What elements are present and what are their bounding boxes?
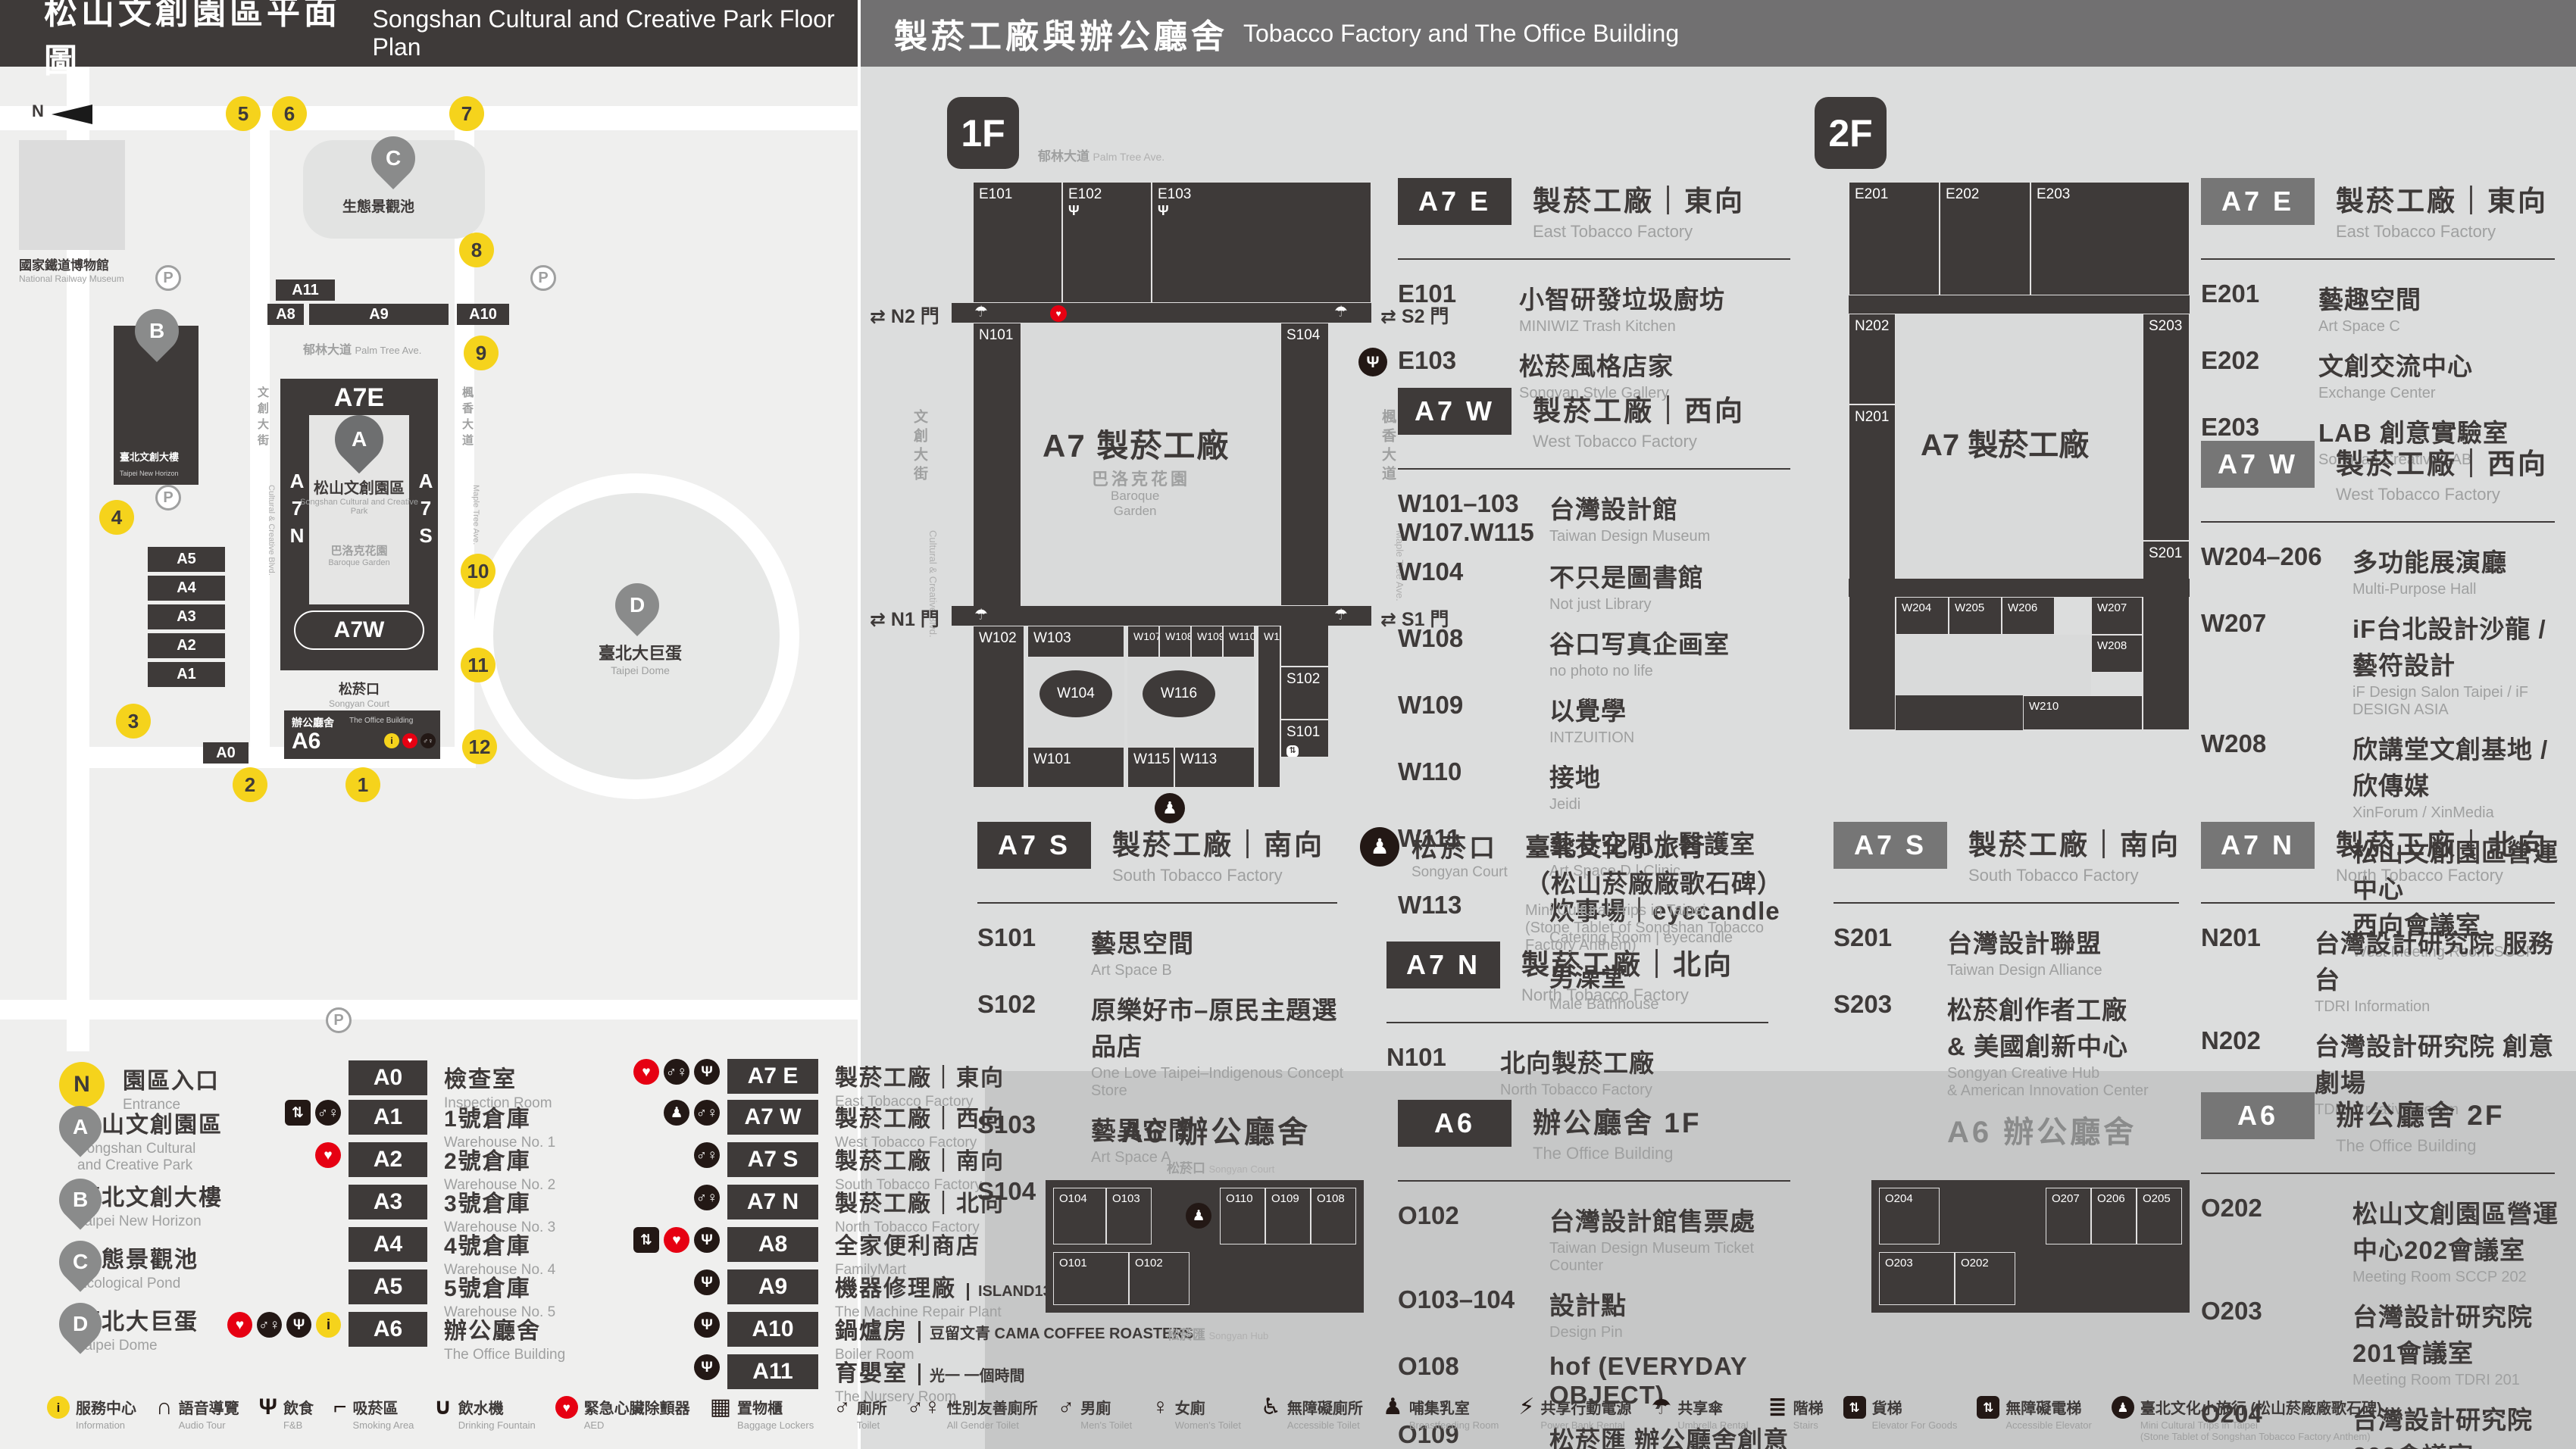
legend-place-zh: 園區入口: [123, 1062, 220, 1095]
plan-room: O103: [1106, 1188, 1152, 1244]
room-name-zh: 松山文創園區營運中心202會議室: [2352, 1194, 2574, 1266]
section-rooms: N201台灣設計研究院 服務台TDRI InformationN202台灣設計研…: [2201, 923, 2574, 1119]
room-code-text: E103: [1398, 346, 1519, 375]
section-rule: [2201, 521, 2555, 523]
room-code-text: W108: [1398, 624, 1549, 653]
entrance-11: 11: [461, 648, 496, 682]
plan-corridor: [952, 606, 1371, 626]
facility-en: Smoking Area: [352, 1419, 414, 1431]
facility-item: ∩ 語音導覽 Audio Tour: [156, 1396, 239, 1431]
gate-n1: ⇄ N1 門: [870, 604, 939, 632]
room-code: N201: [2201, 923, 2315, 1016]
section-title-zh: 製菸工廠｜東向: [2336, 178, 2548, 219]
room-code: S101: [977, 923, 1091, 979]
trips-icon: ♟: [2112, 1396, 2134, 1419]
room-row: W208欣講堂文創基地 / 欣傳媒XinForum / XinMedia: [2201, 729, 2574, 822]
legend-building-code: A4: [349, 1227, 427, 1262]
section-header: A7 W製菸工廠｜西向West Tobacco Factory: [1398, 388, 1811, 451]
facility-en: Information: [76, 1419, 136, 1431]
legend-row-icons: ♂♀: [606, 1185, 720, 1210]
room-code-text: W208: [2201, 729, 2352, 758]
plan-room: E102Ψ: [1062, 182, 1152, 303]
entrance-4: 4: [99, 500, 134, 535]
section-header: A7 S製菸工廠｜南向South Tobacco Factory: [977, 822, 1356, 885]
facility-zh: 置物櫃: [737, 1396, 814, 1418]
room-row: W109以覺學INTZUITION: [1398, 691, 1811, 747]
room-name-zh: 台灣設計館售票處: [1549, 1201, 1811, 1238]
room-name-zh: 藝趣空間: [2318, 279, 2421, 316]
room-row: E202文創交流中心Exchange Center: [2201, 346, 2574, 402]
legend-row-icons: Ψ: [606, 1312, 720, 1338]
room-name-en: Songyan Creative Hub& American Innovatio…: [1947, 1065, 2149, 1100]
plan-garden-zh: 巴洛克花園: [1092, 466, 1190, 490]
facility-item: ⚡ 共享行動電源 Power Bank Rental: [1518, 1396, 1631, 1431]
north-label: N: [32, 101, 44, 121]
entrance-5: 5: [226, 96, 261, 131]
legend-building-code: A11: [727, 1354, 818, 1389]
legend-row-icons: Ψ: [606, 1354, 720, 1380]
room-name-zh: 松菸風格店家: [1519, 346, 1674, 383]
room-code: N101: [1386, 1043, 1500, 1099]
room-code-text: E203: [2201, 413, 2318, 442]
songyan-en: Mini Cultural Trips in Taipei(Stone Tabl…: [1525, 902, 1796, 954]
facility-en: F&B: [283, 1419, 314, 1431]
right-header: 製菸工廠與辦公廳舍 Tobacco Factory and The Office…: [861, 0, 2576, 67]
entrance-1: 1: [345, 767, 380, 802]
fnb-icon: Ψ: [1158, 204, 1169, 217]
fnb-c-icon: Ψ: [694, 1312, 720, 1338]
room-names: iF台北設計沙龍 / 藝符設計iF Design Salon Taipei / …: [2352, 609, 2574, 719]
section-title-en: West Tobacco Factory: [1533, 432, 1745, 451]
a6-1f-court-label: 松菸口 Songyan Court: [1167, 1157, 1274, 1176]
room-names: 不只是圖書館Not just Library: [1549, 557, 1704, 614]
facility-zh: 性別友善廁所: [947, 1396, 1038, 1418]
section-rule: [2201, 258, 2555, 260]
map-a11: A11: [276, 279, 335, 301]
plan-room: S101 ⇅: [1280, 720, 1329, 757]
section-rooms: S201台灣設計聯盟Taiwan Design AllianceS203松菸創作…: [1834, 923, 2197, 1100]
f1-street-left-zh: 文創大街: [909, 409, 930, 485]
a6-1f-hub-label: 松菸匯 Songyan Hub: [1167, 1324, 1268, 1343]
parking-icon: P: [155, 485, 181, 511]
facility-en: Umbrella Rental: [1677, 1419, 1748, 1431]
entrance-7: 7: [449, 96, 484, 131]
room-code: O202: [2201, 1194, 2352, 1286]
map-maple-label-zh: 楓香大道: [459, 386, 475, 450]
legend-building-zh: 檢查室: [444, 1060, 552, 1094]
room-name-zh: 以覺學: [1549, 691, 1634, 727]
plan-room: W108: [1159, 626, 1191, 657]
legend-place-en: Songshan Culturaland Creative Park: [77, 1141, 223, 1174]
toilet-icon: ♂♀: [420, 733, 436, 748]
facility-zh: 無障礙電梯: [2005, 1396, 2091, 1418]
room-row: W108谷口写真企画室no photo no life: [1398, 624, 1811, 680]
legend-place-en: Taipei New Horizon: [77, 1213, 223, 1230]
room-name-en: no photo no life: [1549, 663, 1730, 680]
legend-building-zh: 全家便利商店: [835, 1227, 980, 1260]
left-title-en: Songshan Cultural and Creative Park Floo…: [373, 5, 858, 61]
room-code: O103–104: [1398, 1285, 1549, 1341]
room-row: O102台灣設計館售票處Taiwan Design Museum Ticket …: [1398, 1201, 1811, 1275]
plan-room: S104: [1280, 323, 1329, 606]
legend-building-code: A1: [349, 1100, 427, 1135]
room-name-zh: 松菸創作者工廠& 美國創新中心: [1947, 990, 2149, 1063]
section-badge: A7 S: [977, 822, 1091, 869]
plan-room: O203: [1879, 1252, 1955, 1305]
room-code: W101–103W107.W115: [1398, 489, 1549, 547]
parking-icon: P: [155, 265, 181, 291]
room-row: S201台灣設計聯盟Taiwan Design Alliance: [1834, 923, 2197, 979]
room-code-text: W207: [2201, 609, 2352, 638]
songyan-block: ♟ 松菸口 Songyan Court 臺北文化小旅行（松山菸廠廠歌石碑） Mi…: [1360, 827, 1796, 954]
plan-room: O207: [2046, 1188, 2091, 1244]
plan-room: O101: [1053, 1252, 1129, 1305]
facility-en: Accessible Toilet: [1287, 1419, 1363, 1431]
room-name-zh: 谷口写真企画室: [1549, 624, 1730, 660]
room-code-text: O102: [1398, 1201, 1549, 1230]
map-palm-label: 郁林大道 Palm Tree Ave.: [303, 339, 421, 358]
legend-building-code: A10: [727, 1312, 818, 1347]
section-title-en: The Office Building: [2336, 1136, 2504, 1156]
legend-building-brand: 豆留文青 CAMA COFFEE ROASTERS: [918, 1321, 1193, 1343]
entrance-12: 12: [462, 729, 497, 764]
room-code-text: S101: [977, 923, 1091, 952]
section-badge: A7 E: [1398, 178, 1512, 225]
facility-item: Ψ 飲食 F&B: [259, 1396, 314, 1431]
room-name-zh: 文創交流中心: [2318, 346, 2473, 383]
legend-row-icons: ⇅♥Ψ: [606, 1227, 720, 1253]
section-rule: [1398, 468, 1790, 470]
plan-room: W110: [1223, 626, 1255, 657]
entrance-10: 10: [461, 554, 496, 589]
left-title-zh: 松山文創園區平面圖: [44, 0, 358, 82]
facility-zh: 無障礙廁所: [1287, 1396, 1363, 1418]
plan-room: O104: [1053, 1188, 1106, 1244]
room-name-en: TDRI Information: [2315, 998, 2574, 1016]
plan-room: W210: [2023, 695, 2143, 730]
section-title-en: The Office Building: [1533, 1144, 1701, 1163]
accessible-icon: ♿: [1261, 1396, 1281, 1419]
facility-item: ⇅ 貨梯 Elevator For Goods: [1843, 1396, 1958, 1431]
room-code: W109: [1398, 691, 1549, 747]
legend-place-row: B 臺北文創大樓 Taipei New Horizon: [59, 1179, 223, 1230]
room-row: N201台灣設計研究院 服務台TDRI Information: [2201, 923, 2574, 1016]
section-title-en: East Tobacco Factory: [1533, 222, 1745, 242]
plan-room: W115: [1127, 747, 1174, 788]
parking-icon: P: [326, 1007, 352, 1033]
legend-row-icons: Ψ: [606, 1269, 720, 1295]
room-code-text: E201: [2201, 279, 2318, 308]
info-icon: i: [384, 733, 399, 748]
legend-row-icons: ♂♀: [606, 1142, 720, 1168]
legend-building-code: A3: [349, 1185, 427, 1219]
section-rule: [1398, 1180, 1790, 1182]
road-top: [0, 106, 858, 130]
section-a7s-2f: A7 S製菸工廠｜南向South Tobacco FactoryS201台灣設計…: [1834, 822, 2197, 1110]
room-row: S102原樂好市–原民主題選品店One Love Taipei–Indigeno…: [977, 990, 1356, 1100]
room-code-text: S201: [1834, 923, 1947, 952]
room-code-text: W109: [1398, 691, 1549, 720]
aed-icon: ♥: [633, 1059, 659, 1085]
room-name-en: Meeting Room SCCP 202: [2352, 1269, 2574, 1286]
section-badge: A6: [2201, 1092, 2315, 1139]
section-header: A7 E製菸工廠｜東向East Tobacco Factory: [1398, 178, 1811, 242]
room-name-en: Exchange Center: [2318, 385, 2473, 402]
arrows-icon: ⇄: [870, 611, 886, 629]
fnb-c-icon: Ψ: [694, 1269, 720, 1295]
section-title-zh: 製菸工廠｜南向: [1112, 822, 1324, 863]
room-name-zh: 台灣設計聯盟: [1947, 923, 2102, 960]
room-name-en: Not just Library: [1549, 596, 1704, 614]
room-code: W204–206: [2201, 542, 2352, 598]
section-a7n-1f: A7 N製菸工廠｜北向North Tobacco FactoryN101北向製菸…: [1386, 942, 1788, 1110]
facility-zh: 男廁: [1080, 1396, 1132, 1418]
powerbank-icon: ⚡: [1518, 1396, 1534, 1419]
room-names: 藝思空間Art Space B: [1091, 923, 1194, 979]
facility-item: ▦ 置物櫃 Baggage Lockers: [710, 1396, 814, 1431]
room-row: E101小智研發垃圾廚坊MINIWIZ Trash Kitchen: [1398, 279, 1811, 336]
section-title-zh: 製菸工廠｜東向: [1533, 178, 1745, 219]
section-rule: [2201, 902, 2555, 904]
room-name-zh: 台灣設計研究院201會議室: [2352, 1297, 2574, 1369]
facility-item: ♂ 廁所 Toilet: [833, 1396, 887, 1431]
facility-item: ⌐ 吸菸區 Smoking Area: [333, 1396, 414, 1431]
smoking-icon: ⌐: [333, 1396, 347, 1419]
umbrella-icon: ☂: [1651, 1396, 1671, 1419]
section-titles: 辦公廳舍 1FThe Office Building: [1533, 1100, 1701, 1163]
plan-room: E103Ψ: [1152, 182, 1371, 303]
section-header: A7 S製菸工廠｜南向South Tobacco Factory: [1834, 822, 2197, 885]
room-name-en: Taiwan Design Museum: [1549, 528, 1710, 545]
arrows-icon: ⇄: [1380, 611, 1396, 629]
aed-icon: ♥: [227, 1312, 252, 1338]
plan-room: W109: [1191, 626, 1223, 657]
facility-zh: 貨梯: [1872, 1396, 1958, 1418]
room-name-en: iF Design Salon Taipei / iF DESIGN ASIA: [2352, 684, 2574, 719]
map-a5: A5: [148, 547, 225, 572]
plan-corridor: [1849, 295, 2190, 314]
plan-courtyard: [1896, 635, 2091, 695]
room-code-text: O103–104: [1398, 1285, 1549, 1314]
section-title-en: South Tobacco Factory: [1112, 866, 1324, 885]
section-title-en: West Tobacco Factory: [2336, 485, 2548, 504]
room-code-text: S103: [977, 1110, 1091, 1139]
section-titles: 製菸工廠｜北向North Tobacco Factory: [2336, 822, 2548, 885]
facility-en: Women's Toilet: [1175, 1419, 1241, 1431]
facility-item: ☂ 共享傘 Umbrella Rental: [1651, 1396, 1748, 1431]
plan-center-label: A7 製菸工廠: [1043, 420, 1230, 467]
toilet-c-icon: ♂♀: [664, 1059, 689, 1085]
men-icon: ♂: [1058, 1396, 1075, 1419]
women-icon: ♀: [1152, 1396, 1169, 1419]
room-names: 藝趣空間Art Space C: [2318, 279, 2421, 336]
section-title-en: South Tobacco Factory: [1968, 866, 2181, 885]
room-code: S103: [977, 1110, 1091, 1166]
room-code: W104: [1398, 557, 1549, 614]
room-name-en: Taiwan Design Museum Ticket Counter: [1549, 1240, 1811, 1275]
facility-zh: 臺北文化小旅行 (松山菸廠廠歌石碑): [2140, 1396, 2382, 1418]
section-title-zh: 辦公廳舍 2F: [2336, 1092, 2504, 1133]
section-title-zh: 製菸工廠｜西向: [2336, 441, 2548, 482]
facility-zh: 共享傘: [1677, 1396, 1748, 1418]
right-title-en: Tobacco Factory and The Office Building: [1243, 20, 1679, 48]
plan-room: W102: [973, 626, 1024, 788]
section-title-zh: 製菸工廠｜北向: [2336, 822, 2548, 863]
road-bottom: [0, 1000, 858, 1020]
room-code-text: E101: [1398, 279, 1519, 308]
trips-icon: ♟: [664, 1100, 689, 1126]
plan-band: [1896, 695, 2023, 730]
facility-zh: 飲水機: [458, 1396, 536, 1418]
plan-room: E201: [1849, 182, 1940, 295]
toilet-c-icon: ♂♀: [315, 1100, 341, 1126]
section-badge: A7 S: [1834, 822, 1947, 869]
entrance-2: 2: [233, 767, 267, 802]
section-title-zh: 製菸工廠｜西向: [1533, 388, 1745, 429]
map-a2: A2: [148, 633, 225, 658]
room-names: 台灣設計館售票處Taiwan Design Museum Ticket Coun…: [1549, 1201, 1811, 1275]
room-row: O202松山文創園區營運中心202會議室Meeting Room SCCP 20…: [2201, 1194, 2574, 1286]
audio-icon: ∩: [156, 1396, 173, 1419]
arrows-icon: ⇄: [870, 308, 886, 326]
room-names: 以覺學INTZUITION: [1549, 691, 1634, 747]
section-a7e-2f: A7 E製菸工廠｜東向East Tobacco FactoryE201藝趣空間A…: [2201, 178, 2574, 479]
room-code: O102: [1398, 1201, 1549, 1275]
facility-zh: 服務中心: [76, 1396, 136, 1418]
legend-building-code: A9: [727, 1269, 818, 1304]
gate-n2: ⇄ N2 門: [870, 301, 939, 329]
room-name-en: XinForum / XinMedia: [2352, 804, 2574, 822]
room-name-en: MINIWIZ Trash Kitchen: [1519, 318, 1725, 336]
map-court-label: 松菸口 Songyan Court: [299, 679, 420, 709]
plan-room: E203: [2030, 182, 2190, 295]
plan-room: N202: [1849, 314, 1896, 404]
section-header: A7 N製菸工廠｜北向North Tobacco Factory: [2201, 822, 2574, 885]
map-baroque-label: 巴洛克花園 Baroque Garden: [299, 542, 420, 567]
legend-row-icons: ♥♂♀Ψi: [227, 1312, 341, 1338]
room-names: 台灣設計聯盟Taiwan Design Alliance: [1947, 923, 2102, 979]
facility-en: Men's Toilet: [1080, 1419, 1132, 1431]
legend-building-zh: 辦公廳舍: [444, 1312, 565, 1345]
room-names: 北向製菸工廠North Tobacco Factory: [1500, 1043, 1655, 1099]
room-code: E101: [1398, 279, 1519, 336]
map-a9: A9: [309, 304, 449, 325]
map-a6-block: 辦公廳舍 The Office Building A6 i ♥ ♂♀: [284, 710, 440, 759]
room-code-text: W104: [1398, 557, 1549, 586]
aed-icon: ♥: [1050, 305, 1067, 322]
facility-en: AED: [584, 1419, 690, 1431]
facility-item: ♟ 哺集乳室 Breastfeeding Room: [1383, 1396, 1499, 1431]
section-badge: A7 N: [2201, 822, 2315, 869]
room-names: 台灣設計研究院201會議室Meeting Room TDRI 201: [2352, 1297, 2574, 1389]
section-a7e-1f: A7 E製菸工廠｜東向East Tobacco FactoryE101小智研發垃…: [1398, 178, 1811, 413]
section-badge: A7 W: [1398, 388, 1512, 435]
plan-room: O204: [1879, 1188, 1940, 1244]
section-titles: 製菸工廠｜西向West Tobacco Factory: [2336, 441, 2548, 504]
room-name-zh: 小智研發垃圾廚坊: [1519, 279, 1725, 316]
map-a0: A0: [203, 742, 249, 764]
room-row: S203松菸創作者工廠& 美國創新中心Songyan Creative Hub&…: [1834, 990, 2197, 1100]
section-rule: [977, 902, 1337, 904]
room-code: S201: [1834, 923, 1947, 979]
section-header: A6辦公廳舍 2FThe Office Building: [2201, 1092, 2574, 1156]
songyan-court-icon: ♟: [1360, 827, 1399, 867]
room-row: E201藝趣空間Art Space C: [2201, 279, 2574, 336]
legend-building-en: The Office Building: [444, 1347, 565, 1363]
room-names: 谷口写真企画室no photo no life: [1549, 624, 1730, 680]
room-row: W110接地Jeidi: [1398, 757, 1811, 814]
room-code-text: O202: [2201, 1194, 2352, 1223]
room-names: 台灣設計館Taiwan Design Museum: [1549, 489, 1710, 547]
room-names: 原樂好市–原民主題選品店One Love Taipei–Indigenous C…: [1091, 990, 1356, 1100]
section-rooms: E101小智研發垃圾廚坊MINIWIZ Trash KitchenΨE103松菸…: [1398, 279, 1811, 402]
room-row: W104不只是圖書館Not just Library: [1398, 557, 1811, 614]
umbrella-icon: ☂: [1334, 607, 1348, 623]
facility-item: ♀ 女廁 Women's Toilet: [1152, 1396, 1241, 1431]
legend-building-code: A7 S: [727, 1142, 818, 1177]
facility-en: Breastfeeding Room: [1409, 1419, 1499, 1431]
songyan-court-icon: ♟: [1155, 793, 1185, 823]
toilet-c-icon: ♂♀: [694, 1100, 720, 1126]
plan-room: W113: [1174, 747, 1255, 788]
room-row: W101–103W107.W115台灣設計館Taiwan Design Muse…: [1398, 489, 1811, 547]
facility-item: ♥ 緊急心臟除顫器 AED: [555, 1396, 690, 1431]
legend-place-en: Ecological Pond: [77, 1276, 199, 1292]
plan-room: O205: [2137, 1188, 2182, 1244]
facility-item: ∪ 飲水機 Drinking Fountain: [433, 1396, 535, 1431]
toilet-icon: ♂: [833, 1396, 851, 1419]
legend-building-zh: 1號倉庫: [444, 1100, 555, 1133]
room-name-en: North Tobacco Factory: [1500, 1082, 1655, 1099]
fnb-icon: Ψ: [259, 1396, 277, 1419]
facility-en: All Gender Toilet: [947, 1419, 1038, 1431]
songyan-zh: 臺北文化小旅行（松山菸廠廠歌石碑）: [1525, 827, 1796, 900]
section-titles: 辦公廳舍 2FThe Office Building: [2336, 1092, 2504, 1156]
facility-en: Drinking Fountain: [458, 1419, 536, 1431]
allgender-icon: ♂♀: [907, 1396, 941, 1419]
map-cultural-label-zh: 文創大街: [255, 386, 270, 450]
room-code: O203: [2201, 1297, 2352, 1389]
legend-row-icons: ♟♂♀: [606, 1100, 720, 1126]
section-titles: 製菸工廠｜東向East Tobacco Factory: [1533, 178, 1745, 242]
entrance-6: 6: [272, 96, 307, 131]
plan-garden-en: BaroqueGarden: [1111, 489, 1159, 519]
parking-icon: P: [530, 265, 556, 291]
legend-building-code: A5: [349, 1269, 427, 1304]
railway-museum-block: [19, 140, 125, 250]
plan-room: W205: [1949, 597, 2002, 635]
acclift-icon: ⇅: [1977, 1396, 1999, 1419]
map-cultural-label-en: Cultural & Creative Blvd.: [267, 485, 276, 576]
f1-street-top: 郁林大道 Palm Tree Ave.: [1038, 145, 1165, 164]
facility-item: ⇅ 無障礙電梯 Accessible Elevator: [1977, 1396, 2091, 1431]
plan-room: O102: [1129, 1252, 1190, 1305]
dome-label: 臺北大巨蛋 Taipei Dome: [576, 640, 705, 676]
section-header: A7 E製菸工廠｜東向East Tobacco Factory: [2201, 178, 2574, 242]
room-names: 台灣設計研究院 服務台TDRI Information: [2315, 923, 2574, 1016]
facility-item: ♂ 男廁 Men's Toilet: [1058, 1396, 1133, 1431]
room-name-en: Design Pin: [1549, 1324, 1627, 1341]
goodslift-icon: ⇅: [633, 1227, 659, 1253]
section-title-zh: 辦公廳舍 1F: [1533, 1100, 1701, 1141]
room-row: N101北向製菸工廠North Tobacco Factory: [1386, 1043, 1788, 1099]
left-header: 松山文創園區平面圖 Songshan Cultural and Creative…: [0, 0, 858, 67]
plan-room: W101: [1027, 747, 1124, 788]
arrows-icon: ⇄: [1380, 308, 1396, 326]
right-title-zh: 製菸工廠與辦公廳舍: [894, 9, 1228, 58]
section-rooms: N101北向製菸工廠North Tobacco Factory: [1386, 1043, 1788, 1099]
room-row: W207iF台北設計沙龍 / 藝符設計iF Design Salon Taipe…: [2201, 609, 2574, 719]
